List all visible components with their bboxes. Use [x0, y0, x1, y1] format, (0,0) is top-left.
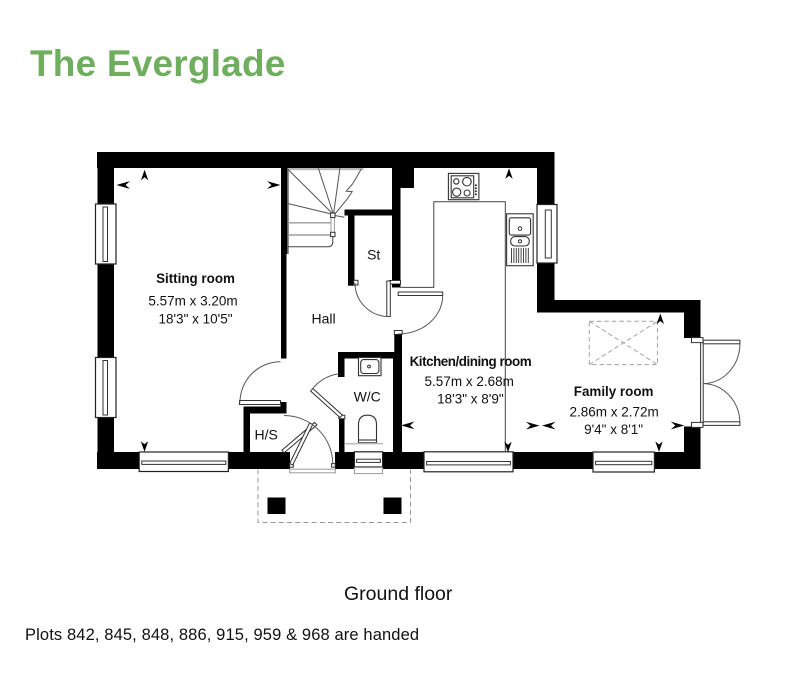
svg-text:18'3" x 8'9": 18'3" x 8'9"	[437, 392, 504, 407]
svg-text:9'4" x 8'1": 9'4" x 8'1"	[584, 422, 643, 437]
svg-text:H/S: H/S	[255, 427, 278, 443]
svg-text:2.86m x 2.72m: 2.86m x 2.72m	[569, 404, 658, 419]
svg-text:18'3" x 10'5": 18'3" x 10'5"	[158, 311, 232, 326]
svg-text:5.57m x 2.68m: 5.57m x 2.68m	[425, 374, 514, 389]
svg-text:W/C: W/C	[354, 388, 381, 404]
svg-text:5.57m x 3.20m: 5.57m x 3.20m	[148, 294, 237, 309]
svg-text:Sitting room: Sitting room	[156, 271, 235, 286]
svg-text:Hall: Hall	[312, 310, 336, 326]
svg-text:Family room: Family room	[574, 384, 654, 399]
svg-text:Kitchen/dining room: Kitchen/dining room	[410, 354, 532, 369]
svg-text:St: St	[367, 247, 380, 263]
